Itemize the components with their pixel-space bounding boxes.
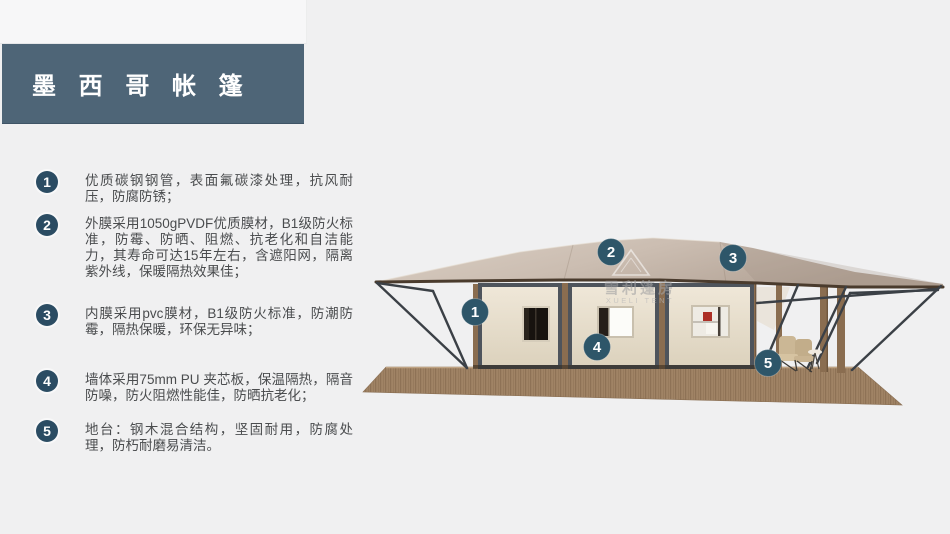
roof-membrane [376, 238, 943, 287]
feature-item-4: 4 墙体采用75mm PU 夹芯板，保温隔热，隔音防噪，防火阻燃性能佳，防晒抗老… [36, 372, 356, 404]
feature-item-2: 2 外膜采用1050gPVDF优质膜材，B1级防火标准，防霉、防晒、阻燃、抗老化… [36, 216, 356, 280]
porch-posts [750, 283, 845, 373]
page-title: 墨 西 哥 帐 篷 [2, 66, 251, 101]
feature-item-1: 1 优质碳钢钢管，表面氟碳漆处理，抗风耐压，防腐防锈； [36, 173, 356, 205]
feature-text: 内膜采用pvc膜材，B1级防火标准，防潮防霉，隔热保暖，环保无异味； [85, 306, 353, 338]
side-table [808, 349, 822, 354]
callout-4: 4 [584, 334, 611, 361]
feature-item-3: 3 内膜采用pvc膜材，B1级防火标准，防潮防霉，隔热保暖，环保无异味； [36, 306, 356, 338]
wall-modules [473, 283, 758, 369]
deck-platform [363, 367, 902, 405]
title-bar: 墨 西 哥 帐 篷 [2, 44, 304, 124]
watermark-en: XUELI TENT [606, 296, 674, 305]
watermark-cn: 雪利篷房 [604, 279, 676, 297]
feature-item-5: 5 地台：钢木混合结构，坚固耐用，防腐处理，防朽耐磨易清洁。 [36, 422, 356, 454]
guy-rods [377, 283, 941, 370]
feature-number-badge: 5 [36, 420, 58, 442]
svg-text:1: 1 [471, 304, 479, 321]
feature-number-badge: 3 [36, 304, 58, 326]
rear-membrane [757, 287, 790, 330]
callout-5: 5 [755, 350, 782, 377]
feature-number-badge: 4 [36, 370, 58, 392]
callout-2: 2 [598, 239, 625, 266]
watermark: 雪利篷房 XUELI TENT [604, 250, 676, 305]
feature-number-badge: 1 [36, 171, 58, 193]
door-frame [597, 306, 634, 338]
feature-list: 1 优质碳钢钢管，表面氟碳漆处理，抗风耐压，防腐防锈； 2 外膜采用1050gP… [36, 173, 356, 454]
feature-text: 优质碳钢钢管，表面氟碳漆处理，抗风耐压，防腐防锈； [85, 173, 353, 205]
feature-number-badge: 2 [36, 214, 58, 236]
porch-chairs [777, 336, 822, 372]
wall-module-3 [665, 283, 754, 369]
svg-text:4: 4 [593, 339, 602, 356]
svg-text:2: 2 [607, 244, 615, 261]
wall-module-2 [568, 283, 659, 369]
dark-window [524, 308, 548, 340]
window-frame [691, 305, 730, 338]
callout-3: 3 [720, 245, 747, 272]
interior-window [693, 307, 728, 336]
svg-text:3: 3 [729, 250, 737, 267]
feature-text: 地台：钢木混合结构，坚固耐用，防腐处理，防朽耐磨易清洁。 [85, 422, 353, 454]
feature-text: 墙体采用75mm PU 夹芯板，保温隔热，隔音防噪，防火阻燃性能佳，防晒抗老化； [85, 372, 353, 404]
image-callouts: 1 2 3 4 5 [462, 239, 782, 377]
feature-text: 外膜采用1050gPVDF优质膜材，B1级防火标准，防霉、防晒、阻燃、抗老化和自… [85, 216, 353, 280]
svg-text:5: 5 [764, 355, 772, 372]
top-left-panel [0, 0, 307, 44]
red-box [703, 312, 712, 321]
open-door [599, 308, 632, 336]
window-frame [522, 306, 550, 342]
wall-module-1 [478, 283, 562, 369]
white-item [706, 323, 717, 334]
callout-1: 1 [462, 299, 489, 326]
